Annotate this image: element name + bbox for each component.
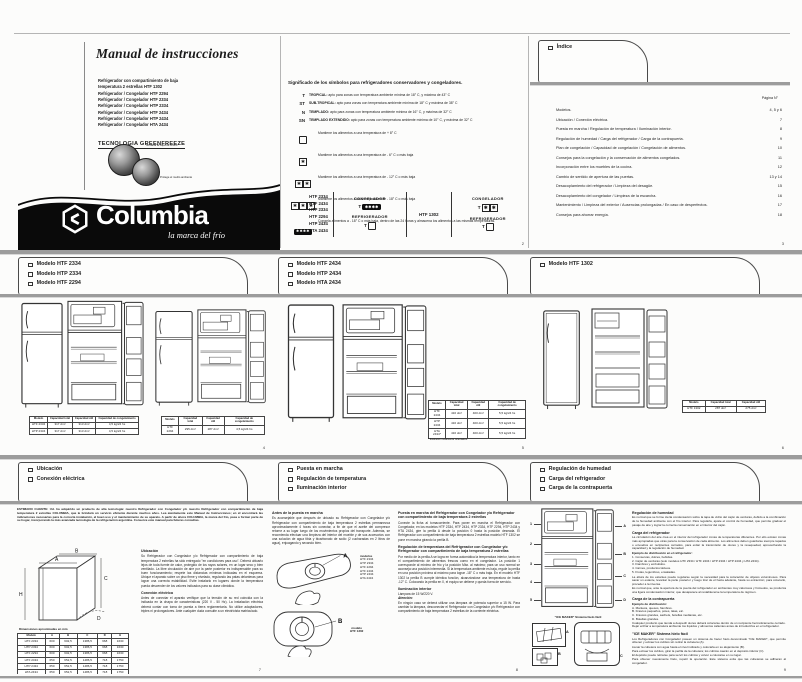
index-entry: Consejos para ahorrar energía. 18 [556,213,782,218]
square-bullet-icon [288,263,293,268]
startup-right-column: Puesta en marcha del Refrigerador con Co… [398,508,520,613]
tab-section-item: Puesta en marcha [288,467,507,472]
table-row: HTA 2434*416 dm³ 400 dm³5,5 kg/24 hs [429,429,526,439]
svg-text:D: D [97,616,101,622]
index-entry-label: Modelos. [556,108,752,113]
symbols-title: Significado de los símbolos para refrige… [288,80,524,85]
index-entry: Consejos para la congelación y la conser… [556,156,782,161]
index-entry: Cambio de sentido de apertura de las pue… [556,175,782,180]
index-entry: Desacoplamiento del congelador / Limpiez… [556,194,782,199]
ice-dispenser-box [574,622,620,666]
tab-section-item: Regulación de humedad [540,467,759,472]
fridge-open-drawing [342,302,428,426]
callout-letter: A [615,524,626,528]
models-page-6: Modelo Capacidad total Capacidad útil HT… [530,300,790,452]
model-b-caption: modelo HTF 1302 [350,627,363,635]
index-entries: Modelos. 4, 5 y 6 Ubicación / Conexión e… [556,108,782,222]
thermostat-b-figure: B modelo HTF 1302 [272,607,390,659]
index-entry: Plan de congelación / Capacidad de conge… [556,146,782,151]
humidity-page: 1 2 3 4 5 A B C D "ICE MAKER" Sistema hi… [528,506,790,674]
greenfreeze-globes: No daña la capa de ozono Protege el medi… [102,142,222,190]
climate-classes-list: T TROPICAL: apto para zonas con temperat… [288,93,524,127]
climate-class-row: N TEMPLADO: apto para zonas con temperat… [288,110,524,115]
tab-section-item: Iluminación interior [288,486,507,491]
index-entry-page: 9 [756,137,782,142]
models-caption: modelos HTF 2334HTP 2334HTF 2294HTF 2434… [360,555,373,581]
table-row: HTA 2434650 652,51486,5 7181750 [18,670,129,674]
climate-class-row: ST SUB-TROPICAL: apto para zonas con tem… [288,101,524,106]
page-divider-1 [280,36,281,248]
bottom-rule [0,676,802,679]
table-row: HTP 2434416 dm³ 400 dm³5,5 kg/24 hs [429,419,526,429]
symbols-page: Significado de los símbolos para refrige… [282,36,528,250]
index-entry-page: 12 [756,165,782,170]
startup-page: Antes de la puesta en marcha Es aconseja… [270,506,522,674]
location-text-column: Ubicación Su Refrigerador con Congelador… [141,546,263,613]
thermostat-knob-a-drawing: A [272,549,356,605]
tab-model-item: Modelo HTF 2334 [28,262,247,267]
climate-name: TROPICAL: [309,93,327,97]
svg-text:B: B [338,619,343,625]
section-text: Es normal que se forme cierta condensaci… [632,516,786,527]
fridge-closed-drawing [155,310,193,408]
index-entry: Desacoplamiento del refrigerador / Limpi… [556,184,782,189]
svg-text:B: B [75,549,79,555]
square-bullet-icon [288,282,293,287]
attention-text: En ningún caso se deberá utilizar una lá… [398,601,520,613]
square-bullet-icon [540,477,545,482]
index-entry-page: 15 [756,184,782,189]
location-tab: UbicaciónConexión eléctrica [18,462,248,502]
tab-model-item: Modelo HTF 2294 [28,281,247,286]
climate-desc: SUB-TROPICAL: apto para zonas con temper… [309,101,457,106]
row2-tab-rule [0,294,802,298]
matrix-left-symbols: CONGELADOR T ✱✱✱✱ REFRIGERADOR T [333,192,407,237]
index-entry-label: Incorporación entre los muebles de la co… [556,165,752,170]
ice-box-label: C [620,654,623,658]
section-text: Dejar enfriar a temperatura ambiente los… [632,625,786,629]
capacity-table: Modelo Capacidad total Capacidad útil Ca… [29,416,139,435]
humidity-figure-column: 1 2 3 4 5 A B C D "ICE MAKER" Sistema hi… [530,508,626,674]
index-tab-item: Índice [548,45,647,50]
row3-tab-rule [0,501,802,505]
page-divider-2 [528,36,529,248]
cover-page: Manual de instrucciones Refrigerador con… [18,36,280,250]
intro-paragraph: ESTIMADO CLIENTE: Ud. ha adquirido un pr… [17,508,263,523]
ice-box-label: B [558,652,561,656]
index-tab: Índice [538,40,648,83]
ice-maker-list: Los Refrigeradores con Congelador poseen… [632,638,786,666]
table-row: HTF 2294295 dm³ 287 dm³4,5 kg/24 hs [162,425,265,435]
climate-code: N [288,110,309,115]
matrix-right-symbols: CONGELADOR T ✱✱ REFRIGERADOR T [452,192,524,237]
page-number: 9 [784,667,786,672]
capacity-table: Modelo Capacidad total Capacidad útil HT… [682,400,766,413]
cover-model-list: Refrigerador con compartimiento de bajat… [98,78,258,129]
section-heading: Puesta en marcha del Refrigerador con Co… [398,511,520,520]
page-number: 3 [782,241,784,246]
four-star-badge-icon: ✱✱✱✱ [362,204,381,210]
thermostat-a-figure: A modelos HTF 2334HTP 2334HTF 2294HTF 24… [272,549,390,607]
fridge-open-drawing [540,508,616,612]
tab-model-item: Modelo HTA 2434 [288,281,507,286]
table-row: HTF 1302287 dm³ 275 dm³ [683,406,766,412]
index-entry: Ubicación / Conexión eléctrica. 7 [556,118,782,123]
callout-letter: C [615,574,626,578]
table-row: HTP 2334317 dm³ 313 dm³4,5 kg/24 hs [30,428,139,434]
caption-model: HTA 2434 [360,577,373,581]
brand-band: Columbia la marca del frío [18,184,280,250]
index-entry: Mantenimiento / Limpieza del exterior / … [556,203,782,208]
star-row: Mantiene los alimentos a una temperatura… [288,131,524,149]
page-number: 8 [516,667,518,672]
index-column-header: Página N° [762,96,778,101]
callout-number: 1 [530,522,541,526]
star-row: ✱✱ Mantiene los alimentos a una temperat… [288,175,524,193]
section-text: Antes de conectar el aparato verifique q… [141,596,263,613]
section-text: Su Refrigerador con Congelador y/o Refri… [141,554,263,587]
row-separator-2 [0,455,802,460]
cover-vertical-rule [84,42,85,190]
climate-name: TEMPLADO: [309,110,329,114]
square-bullet-icon [28,468,33,473]
matrix-model: HTP 2334 [309,207,328,214]
tab-model-item: Modelo HTP 2334 [28,272,247,277]
callout-letter: D [615,598,626,602]
matrix-model: HTF 2434 [309,201,328,208]
index-entry-label: Desacoplamiento del congelador / Limpiez… [556,194,752,199]
humidity-tab: Regulación de humedadCarga del refrigera… [530,462,760,502]
index-entry-page: 17 [756,203,782,208]
square-bullet-icon [548,46,553,51]
ice-cubes-box [532,648,558,666]
columbia-hexagon-logo-icon [60,204,90,234]
one-star-icon: ✱ [288,153,318,171]
page-number: 5 [522,445,524,450]
tab-section-item: Carga de la contrapuerta [540,486,759,491]
isometric-fridge-drawing: A B C D H [17,546,121,626]
callout-number: 4 [530,580,541,584]
thermostat-knob-b-drawing: B [272,607,344,657]
square-bullet-icon [288,272,293,277]
section-heading: Ubicación [141,549,263,553]
section-heading: Iluminación interior [398,587,520,591]
section-heading: Antes de la puesta en marcha [272,511,390,515]
manual-title: Manual de instrucciones [96,46,239,62]
index-entry: Puesta en marcha / Regulación de tempera… [556,127,782,132]
ice-maker-figures: A B C [530,620,626,666]
section-text: Es aconsejable que después de ubicado su… [272,516,390,545]
square-bullet-icon [28,282,33,287]
index-entry-label: Mantenimiento / Limpieza del exterior / … [556,203,752,208]
callout-number: 5 [530,598,541,602]
square-bullet-icon [28,263,33,268]
fridge-open-drawing [197,308,267,408]
ice-box-label: A [566,630,569,634]
row-separator-1 [0,250,802,255]
fridge-closed-drawing [542,310,582,410]
square-bullet-icon [540,487,545,492]
climate-code: ST [288,101,309,106]
globe-caption: Protege el medio ambiente [160,176,220,179]
fridge-box-icon [288,131,318,149]
capacity-table: Modelo Capacidad total Capacidad útil Ca… [428,400,526,439]
square-bullet-icon [28,272,33,277]
climate-code: SN [288,118,309,123]
models-tab-group-2: Modelo HTF 2434Modelo HTP 2434Modelo HTA… [278,257,508,295]
capacity-table: Modelo Capacidad total Capacidad útil Ca… [161,416,265,435]
index-entry-label: Cambio de sentido de apertura de las pue… [556,175,752,180]
matrix-right-model: HTF 1302 [407,192,452,237]
tab-section-item: Regulación de temperatura [288,477,507,482]
tab-section-item: Ubicación [28,467,247,472]
tab-model-item: Modelo HTF 1302 [540,262,759,267]
callout-number: 3 [530,562,541,566]
matrix-model: HTF 2334 [309,194,328,201]
index-entry-page: 13 y 14 [756,175,782,180]
section-text: La circulación del aire crea en el inter… [632,536,786,551]
fridge-closed-drawing [21,302,63,410]
square-bullet-icon [288,477,293,482]
index-entry-page: 4, 5 y 6 [756,108,782,113]
fridge-closed-drawing [286,304,336,424]
index-entry: Modelos. 4, 5 y 6 [556,108,782,113]
square-bullet-icon [540,263,545,268]
square-bullet-icon [288,468,293,473]
door-distribution-list: A. Manteca, quesos, fiambres.B. Frascos … [632,607,786,622]
two-star-icon: ✱✱ [288,175,318,193]
svg-text:C: C [104,576,108,582]
page-number: 2 [522,241,524,246]
matrix-model: HTF 2294 [309,214,328,221]
fridge-callout-figure: 1 2 3 4 5 A B C D [530,508,626,614]
humidity-text-column: Regulación de humedad Es normal que se f… [632,508,786,666]
index-entry: Incorporación entre los muebles de la co… [556,165,782,170]
fridge-open-drawing [67,300,145,410]
index-entry-label: Regulación de humedad / Carga del refrig… [556,137,752,142]
callout-number: 2 [530,542,541,546]
section-heading: "ICE MAKER" Sistema hielo fácil [632,632,786,636]
index-entry-page: 7 [756,118,782,123]
climate-class-row: T TROPICAL: apto para zonas con temperat… [288,93,524,98]
index-entry-label: Consejos para la congelación y la conser… [556,156,752,161]
list-item: Para obtener nuevamente hielo, repetir l… [632,658,786,666]
brand-tagline: la marca del frío [168,230,225,240]
models-page-4: Modelo Capacidad total Capacidad útil Ca… [15,300,269,452]
cover-model-line: Refrigerador / Congelador HTA 2434 [98,122,258,128]
square-bullet-icon [540,468,545,473]
dimensions-table-title: Dimensiones aproximadas en mm [19,628,135,632]
globe-caption: No daña la capa de ozono [146,144,206,147]
index-entry-page: 18 [756,213,782,218]
section-text: Es normal que, ante la apertura de la pu… [632,587,786,595]
tab-model-item: Modelo HTF 2434 [288,262,507,267]
index-tab-rule [530,82,790,86]
refrigerador-symbol: T [339,222,401,230]
index-entry-label: Consejos para ahorrar energía. [556,213,752,218]
startup-left-column: Antes de la puesta en marcha Es aconseja… [272,508,390,659]
page-number: 4 [263,445,265,450]
table-footnote: * Ilustración solamente orientativa. [428,438,468,441]
climate-desc: TEMPLADO: apto para zonas con temperatur… [309,110,452,115]
matrix-model-list: HTF 2334HTF 2434HTP 2334HTF 2294HTP 2434… [304,192,333,237]
index-entry-page: 10 [756,146,782,151]
tab-model-item: Modelo HTP 2434 [288,272,507,277]
square-bullet-icon [288,487,293,492]
index-entry-page: 8 [756,127,782,132]
section-heading: Conexión eléctrica [141,591,263,595]
page-number: 6 [782,445,784,450]
tab-section-item: Carga del refrigerador [540,477,759,482]
climate-name: TEMPLADO EXTENDIDO: [309,118,350,122]
congelador-symbol: T ✱✱✱✱ [339,204,401,211]
callout-letter: B [615,552,626,556]
page-number: 7 [259,667,261,672]
startup-tab: Puesta en marchaRegulación de temperatur… [278,462,508,502]
index-entry-label: Puesta en marcha / Regulación de tempera… [556,127,752,132]
matrix-model: HTP 2434 [309,221,328,228]
index-entry-label: Desacoplamiento del refrigerador / Limpi… [556,184,752,189]
distribution-list: 1. Conservas, dulces, bebidas.2. Cajón d… [632,556,786,575]
section-heading: Regulación de temperatura del Refrigerad… [398,545,520,554]
tab-section-item: Conexión eléctrica [28,477,247,482]
section-text: Por medio de la perilla A se logra en fo… [398,555,520,584]
fridge-open-drawing [590,308,670,412]
climate-desc: TROPICAL: apto para zonas con temperatur… [309,93,450,98]
matrix-model: HTA 2434 [309,228,328,235]
index-entry: Regulación de humedad / Carga del refrig… [556,137,782,142]
table-row: HTF 2434416 dm³ 400 dm³5,5 kg/24 hs [429,409,526,419]
model-symbol-matrix: HTF 2334HTF 2434HTP 2334HTF 2294HTP 2434… [304,192,524,237]
index-entry-label: Ubicación / Conexión eléctrica. [556,118,752,123]
top-rule [14,33,790,34]
refrigerador-symbol: T [457,223,519,231]
congelador-symbol: T ✱✱ [457,204,519,212]
index-entry-page: 11 [756,156,782,161]
star-row: ✱ Mantiene los alimentos a una temperatu… [288,153,524,171]
dimensions-table: Modelo A B C D H HTF 2334600 602,51386,5… [17,633,129,674]
location-figure-column: A B C D H Dimensiones aproximadas en mm … [17,546,135,674]
globe-icon [132,158,160,186]
climate-desc: TEMPLADO EXTENDIDO: apto para zonas con … [309,118,472,123]
square-bullet-icon [28,477,33,482]
models-tab-group-1: Modelo HTF 2334Modelo HTP 2334Modelo HTF… [18,257,248,295]
index-entry-label: Plan de congelación / Capacidad de conge… [556,146,752,151]
location-page: ESTIMADO CLIENTE: Ud. ha adquirido un pr… [15,506,265,674]
svg-text:H: H [19,592,23,598]
models-page-5: Modelo Capacidad total Capacidad útil Ca… [278,300,528,452]
manual-scan: Manual de instrucciones Refrigerador con… [0,0,802,682]
index-page: Índice Página N° Modelos. 4, 5 y 6 Ubica… [530,36,790,250]
climate-code: T [288,93,309,98]
climate-name: SUB-TROPICAL: [309,101,336,105]
models-tab-group-3: Modelo HTF 1302 [530,257,760,295]
section-text: Conecte la ficha al tomacorriente. Para … [398,521,520,542]
climate-class-row: SN TEMPLADO EXTENDIDO: apto para zonas c… [288,118,524,123]
ice-tray-box [532,623,566,647]
index-entry-page: 16 [756,194,782,199]
brand-wordmark: Columbia [96,200,208,231]
